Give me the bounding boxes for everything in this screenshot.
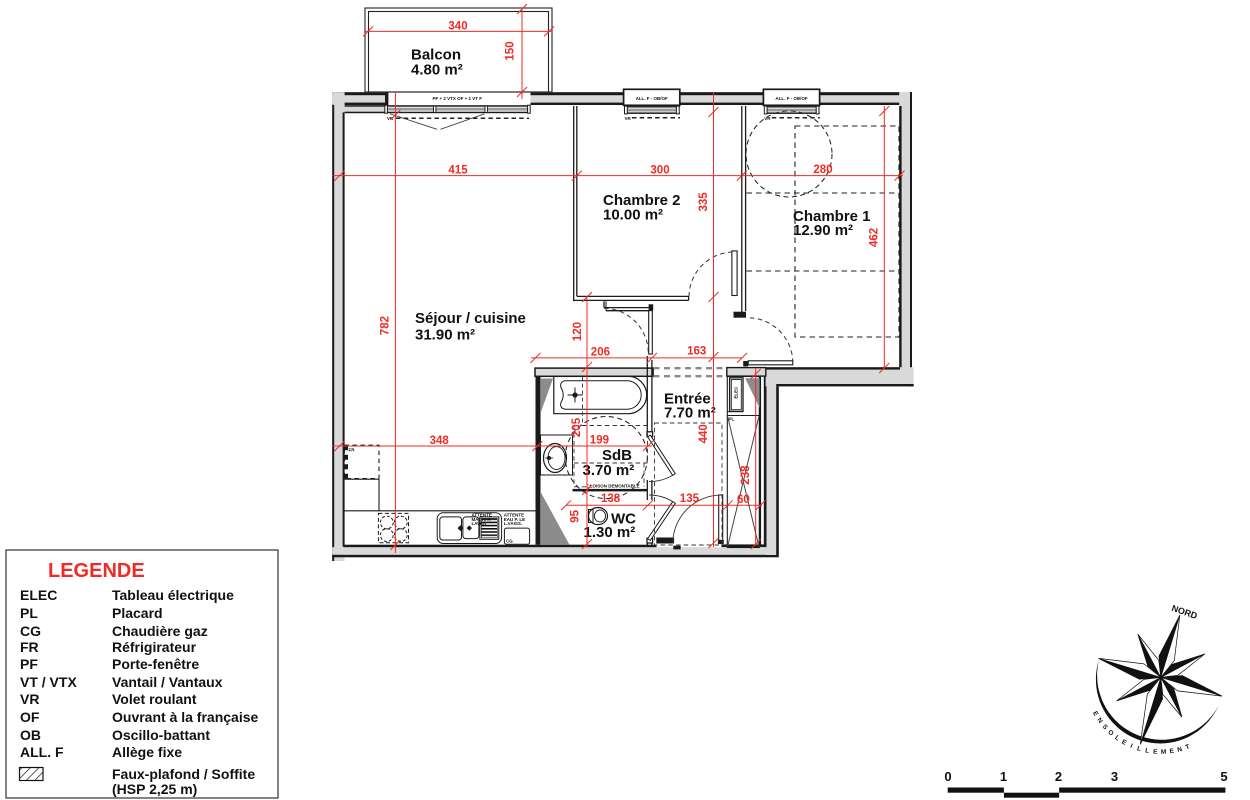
svg-text:415: 415: [448, 165, 468, 177]
svg-text:Séjour / cuisine: Séjour / cuisine: [415, 310, 526, 327]
svg-text:CG: CG: [20, 623, 41, 639]
svg-text:440: 440: [698, 424, 710, 443]
svg-text:LAVER: LAVER: [472, 521, 488, 526]
svg-text:PF + 2 VTX OF + 1 VT F: PF + 2 VTX OF + 1 VT F: [433, 96, 483, 101]
svg-text:335: 335: [698, 192, 710, 212]
svg-text:1: 1: [1000, 769, 1007, 784]
svg-text:Ouvrant à la française: Ouvrant à la française: [112, 709, 259, 725]
svg-text:L.VAISS.: L.VAISS.: [504, 521, 522, 526]
svg-text:CLOISON DEMONTABLE: CLOISON DEMONTABLE: [587, 483, 640, 488]
svg-text:FR: FR: [349, 448, 356, 453]
svg-text:31.90 m²: 31.90 m²: [415, 327, 475, 344]
svg-text:(HSP 2,25 m): (HSP 2,25 m): [112, 781, 197, 797]
svg-text:238: 238: [740, 465, 752, 485]
svg-text:M: M: [1161, 749, 1167, 756]
svg-text:12.90 m²: 12.90 m²: [793, 222, 853, 239]
svg-text:4.80 m²: 4.80 m²: [411, 62, 463, 79]
svg-text:Oscillo-battant: Oscillo-battant: [112, 727, 210, 743]
svg-text:300: 300: [650, 165, 669, 177]
svg-text:VR: VR: [625, 116, 632, 121]
svg-text:Faux-plafond / Soffite: Faux-plafond / Soffite: [112, 766, 255, 782]
svg-text:163: 163: [687, 345, 706, 357]
svg-text:Porte-fenêtre: Porte-fenêtre: [112, 656, 199, 672]
svg-text:340: 340: [448, 21, 467, 33]
svg-text:348: 348: [430, 435, 450, 447]
svg-text:VT / VTX: VT / VTX: [20, 674, 77, 690]
svg-text:199: 199: [590, 435, 609, 447]
svg-text:Placard: Placard: [112, 605, 163, 621]
svg-text:OB: OB: [20, 727, 41, 743]
svg-text:7.70 m²: 7.70 m²: [664, 405, 716, 422]
svg-text:CG: CG: [506, 539, 513, 544]
svg-text:206: 206: [591, 346, 610, 358]
svg-text:Vantail / Vantaux: Vantail / Vantaux: [112, 674, 223, 690]
svg-text:782: 782: [379, 316, 391, 335]
svg-text:120: 120: [572, 322, 584, 341]
svg-text:5: 5: [1220, 769, 1227, 784]
svg-text:ELEC: ELEC: [20, 587, 57, 603]
svg-text:Allège fixe: Allège fixe: [112, 744, 182, 760]
svg-text:3.70 m²: 3.70 m²: [583, 462, 635, 479]
svg-text:0: 0: [944, 769, 951, 784]
svg-text:ELEC: ELEC: [734, 386, 739, 399]
svg-text:PF: PF: [20, 656, 38, 672]
svg-text:280: 280: [813, 164, 832, 176]
svg-text:138: 138: [601, 493, 621, 505]
svg-text:LEGENDE: LEGENDE: [48, 560, 145, 582]
svg-text:ALL. F: ALL. F: [20, 744, 64, 760]
svg-text:Chaudière gaz: Chaudière gaz: [112, 623, 208, 639]
svg-text:3: 3: [1111, 769, 1118, 784]
svg-text:1.30 m²: 1.30 m²: [584, 524, 636, 541]
svg-text:Réfrigirateur: Réfrigirateur: [112, 639, 197, 655]
svg-text:60: 60: [737, 494, 750, 506]
svg-text:Tableau électrique: Tableau électrique: [112, 587, 234, 603]
svg-text:150: 150: [505, 41, 517, 60]
svg-text:Volet roulant: Volet roulant: [112, 691, 197, 707]
svg-text:462: 462: [869, 228, 881, 247]
svg-text:ALL. F - OB/OF: ALL. F - OB/OF: [775, 96, 807, 101]
svg-text:2: 2: [1055, 769, 1062, 784]
svg-text:OF: OF: [20, 709, 40, 725]
svg-text:PL: PL: [729, 417, 735, 422]
svg-text:10.00 m²: 10.00 m²: [603, 207, 663, 224]
svg-text:135: 135: [680, 493, 700, 505]
svg-text:95: 95: [570, 509, 582, 522]
svg-text:ALL. F - OB/OF: ALL. F - OB/OF: [636, 96, 668, 101]
svg-text:VR: VR: [20, 691, 39, 707]
svg-text:FR: FR: [20, 639, 39, 655]
svg-text:205: 205: [571, 417, 583, 437]
svg-text:PL: PL: [20, 605, 38, 621]
